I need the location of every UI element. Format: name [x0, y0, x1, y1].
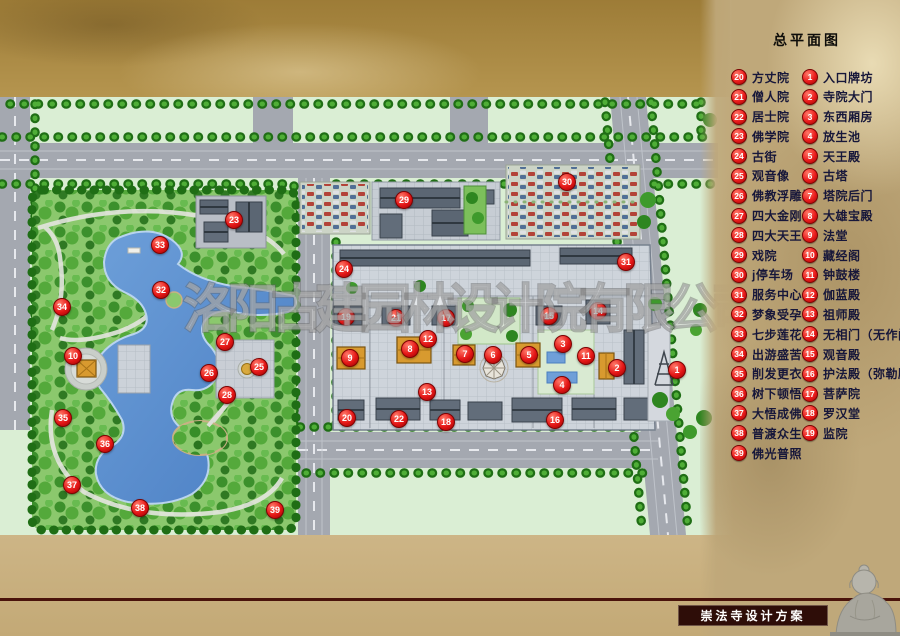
map-marker-30[interactable]: 30: [558, 173, 576, 191]
map-marker-33[interactable]: 33: [151, 236, 169, 254]
divider-line: [0, 598, 900, 601]
site-plan-screenshot: { "header": { "legend_title": "总平面图" }, …: [0, 0, 900, 636]
map-marker-11[interactable]: 11: [577, 347, 595, 365]
map-marker-4[interactable]: 4: [553, 376, 571, 394]
map-marker-24[interactable]: 24: [335, 260, 353, 278]
map-marker-20[interactable]: 20: [338, 409, 356, 427]
map-marker-18[interactable]: 18: [437, 413, 455, 431]
project-title: 崇法寺设计方案: [700, 607, 805, 624]
pond: [547, 352, 565, 363]
map-marker-35[interactable]: 35: [54, 409, 72, 427]
map-marker-34[interactable]: 34: [53, 298, 71, 316]
legend-title: 总平面图: [742, 30, 872, 50]
boat-dock: [128, 248, 140, 253]
map-marker-6[interactable]: 6: [484, 346, 502, 364]
top-gold-band: [0, 0, 730, 97]
map-marker-36[interactable]: 36: [96, 435, 114, 453]
legend-panel: [700, 0, 900, 636]
map-marker-7[interactable]: 7: [456, 345, 474, 363]
map-marker-27[interactable]: 27: [216, 333, 234, 351]
map-marker-31[interactable]: 31: [617, 253, 635, 271]
map-marker-13[interactable]: 13: [418, 383, 436, 401]
map-marker-37[interactable]: 37: [63, 476, 81, 494]
map-marker-21[interactable]: 21: [387, 309, 405, 327]
map-marker-38[interactable]: 38: [131, 499, 149, 517]
map-marker-32[interactable]: 32: [152, 281, 170, 299]
map-marker-15[interactable]: 15: [540, 307, 558, 325]
map-marker-2[interactable]: 2: [608, 359, 626, 377]
map-marker-5[interactable]: 5: [520, 346, 538, 364]
map-marker-3[interactable]: 3: [554, 335, 572, 353]
map-marker-22[interactable]: 22: [390, 410, 408, 428]
map-marker-14[interactable]: 14: [589, 302, 607, 320]
map-marker-29[interactable]: 29: [395, 191, 413, 209]
map-marker-9[interactable]: 9: [341, 349, 359, 367]
map-marker-10[interactable]: 10: [64, 347, 82, 365]
map-marker-28[interactable]: 28: [218, 386, 236, 404]
map-marker-25[interactable]: 25: [250, 358, 268, 376]
project-title-box: 崇法寺设计方案: [678, 605, 828, 626]
map-marker-8[interactable]: 8: [401, 340, 419, 358]
map-marker-26[interactable]: 26: [200, 364, 218, 382]
map-marker-17[interactable]: 17: [437, 309, 455, 327]
map-marker-1[interactable]: 1: [668, 361, 686, 379]
map-marker-39[interactable]: 39: [266, 501, 284, 519]
map-marker-12[interactable]: 12: [419, 330, 437, 348]
map-marker-19[interactable]: 19: [337, 308, 355, 326]
map-marker-16[interactable]: 16: [546, 411, 564, 429]
map-marker-23[interactable]: 23: [225, 211, 243, 229]
